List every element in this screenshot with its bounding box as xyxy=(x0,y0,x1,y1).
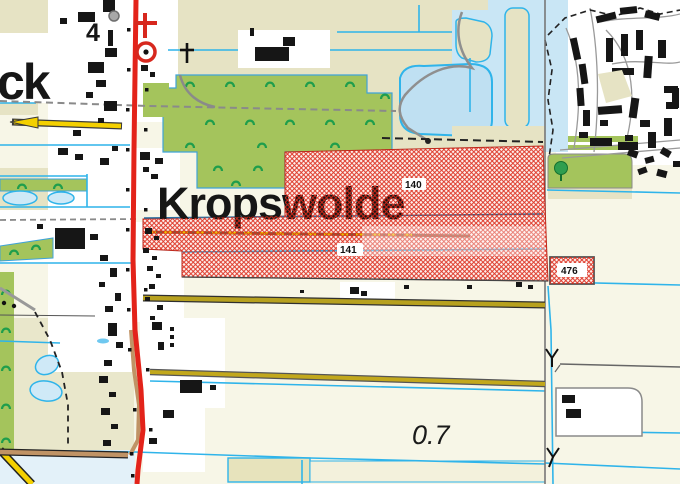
lake-shore xyxy=(452,126,545,148)
silo-icon xyxy=(109,11,119,21)
map-svg: Kropswolde 140 141 476 xyxy=(0,0,680,484)
bottom-right-plot xyxy=(556,388,642,436)
parcel-label-476: 476 xyxy=(561,266,578,277)
road-number-label: 4 xyxy=(86,19,100,47)
lake-island xyxy=(456,18,492,62)
lake-spit xyxy=(505,8,529,128)
parcel-label-141: 141 xyxy=(340,245,357,256)
topographic-map-canvas[interactable]: Kropswolde 140 141 476 xyxy=(0,0,680,484)
pond xyxy=(400,64,492,136)
parcel-label-140: 140 xyxy=(405,180,422,191)
depth-label: 0.7 xyxy=(412,420,451,450)
bottom-parcels xyxy=(228,458,545,482)
place-label-partial: ck xyxy=(0,54,51,110)
